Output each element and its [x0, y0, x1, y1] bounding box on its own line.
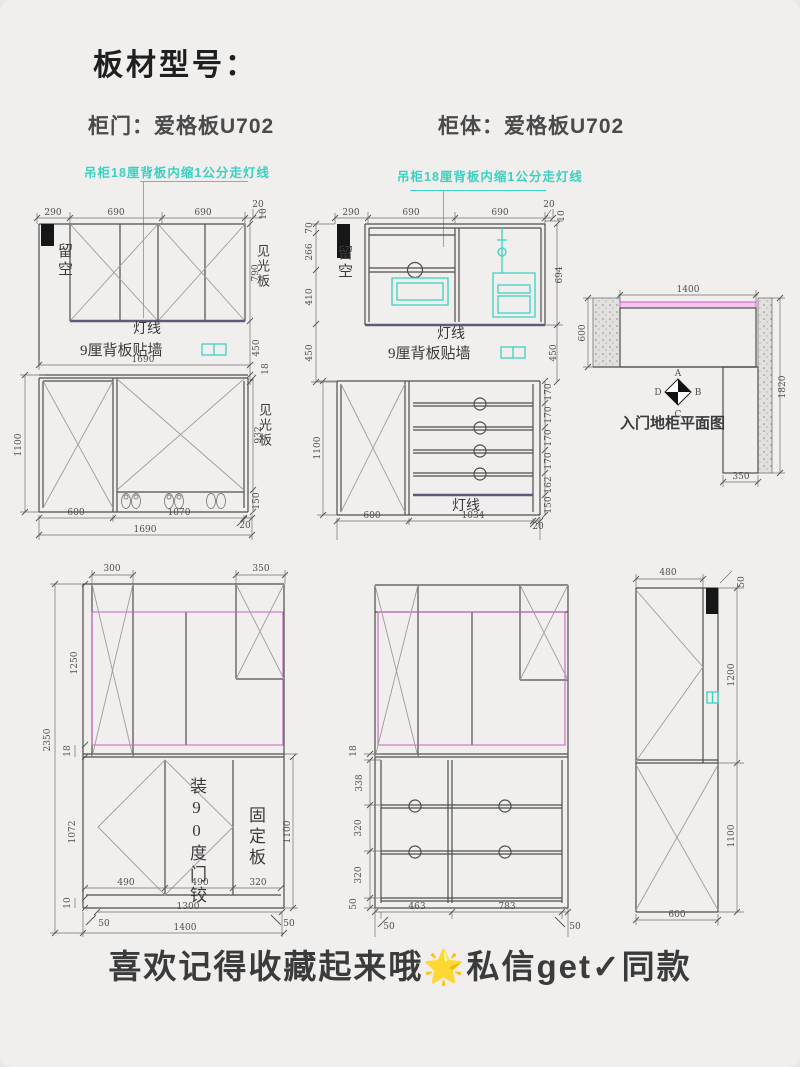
dim-label: 600: [578, 324, 588, 341]
dim-label: 320: [354, 819, 364, 836]
dim-label: 1072: [68, 821, 78, 844]
dim-label: 50: [349, 898, 359, 910]
dim-label: 150: [544, 496, 554, 513]
plan-light-band: [620, 302, 756, 308]
dim-label: 450: [549, 344, 559, 361]
compass-label-b: B: [695, 388, 702, 398]
dim-label: 170: [544, 406, 554, 423]
dim-label: 18: [63, 745, 73, 757]
drawing-bottom-middle: 18 338 320 320 50 463 783 50 50: [340, 555, 600, 955]
dim-label: 690: [194, 208, 211, 218]
dim-label: 480: [659, 568, 676, 578]
wall-cabinet-note-left: 吊柜18厘背板内缩1公分走灯线: [84, 162, 270, 181]
page-title: 板材型号：: [93, 40, 258, 84]
dim-label: 170: [544, 429, 554, 446]
dim-label: 410: [305, 288, 315, 305]
plan-left-wall: [593, 298, 620, 367]
dim-label: 290: [44, 208, 61, 218]
dim-label: 600: [67, 508, 84, 518]
compass-icon: [665, 379, 691, 405]
d1-wall-stub: [41, 224, 54, 246]
dim-label: 350: [732, 472, 749, 482]
dim-label: 1250: [70, 651, 80, 674]
d4-fixed-board-note: 固定板: [247, 806, 264, 869]
dim-label: 600: [668, 910, 685, 920]
dim-label: 320: [354, 866, 364, 883]
d1-backpanel-label: 9厘背板贴墙: [80, 339, 163, 360]
dim-label: 1690: [134, 525, 157, 535]
d2-liukong-label: 留空: [336, 245, 351, 281]
dim-label: 18: [349, 745, 359, 757]
d6-braces: [636, 590, 718, 910]
dim-label: 2350: [43, 728, 53, 751]
dim-label: 338: [355, 774, 365, 791]
d2-coffee-machine-icon: [493, 228, 535, 317]
d5-outline: [375, 585, 568, 908]
dim-label: 690: [402, 208, 419, 218]
dim-label: 18: [261, 363, 271, 375]
dim-label: 690: [491, 208, 508, 218]
body-spec-label: 柜体：爱格板U702: [438, 110, 624, 140]
dim-label: 450: [252, 339, 262, 356]
drawing-plan-view: 1400 600 1820 350 A B C D: [580, 275, 800, 490]
d2-microwave-icon: [392, 278, 448, 305]
d1-dengxian-label: 灯线: [133, 318, 161, 338]
dim-label: 690: [107, 208, 124, 218]
d2-knob: [408, 263, 423, 278]
d6-tick-marks: [633, 576, 740, 923]
dim-label: 266: [305, 243, 315, 260]
d2-backpanel-label: 9厘背板贴墙: [388, 342, 471, 363]
dim-label: 290: [342, 208, 359, 218]
d1-shoes-icon: [122, 494, 226, 509]
dim-label: 20: [532, 522, 544, 532]
dim-label: 170: [544, 452, 554, 469]
d1-jianguangban-bottom: 见光板: [258, 403, 271, 448]
d1-door-braces: [43, 224, 245, 508]
dim-label: 1400: [174, 923, 197, 933]
dim-label: 320: [249, 878, 266, 888]
d1-liukong-label: 留空: [56, 243, 71, 279]
d6-switch-icon: [707, 692, 718, 703]
d6-wall-stub: [706, 588, 718, 614]
dim-label: 70: [305, 222, 315, 234]
d2-drawer-knobs: [474, 398, 486, 480]
dim-label: 1400: [677, 285, 700, 295]
note-underline-right: [410, 190, 546, 191]
dim-label: 300: [103, 564, 120, 574]
d2-dengxian-top-label: 灯线: [437, 323, 465, 343]
drawing-bottom-right: 480 50 1200 1100 600: [600, 555, 800, 955]
d2-braces: [341, 384, 405, 512]
dim-label: 20: [543, 200, 555, 210]
plan-counter: [620, 308, 756, 367]
d5-dim-lines: [364, 754, 568, 937]
d2-switch-icon: [501, 347, 525, 358]
compass-label-d: D: [654, 388, 661, 398]
dim-label: 350: [252, 564, 269, 574]
dim-label: 1100: [14, 433, 24, 456]
dim-label: 490: [117, 878, 134, 888]
dim-label: 50: [283, 919, 295, 929]
plan-caption: 入门地柜平面图: [620, 412, 725, 433]
dim-label: 450: [305, 344, 315, 361]
dim-label: 694: [555, 266, 565, 283]
dim-label: 50: [383, 922, 395, 932]
d4-hinge-note: 装90度门铰: [188, 777, 205, 907]
blueprint-poster: 板材型号： 柜门：爱格板U702 柜体：爱格板U702 吊柜18厘背板内缩1公分…: [0, 0, 800, 1067]
note-underline-left: [140, 181, 248, 182]
footer-banner: 喜欢记得收藏起来哦🌟私信get✓同款: [0, 940, 800, 988]
door-spec-label: 柜门：爱格板U702: [88, 110, 274, 140]
d2-dengxian-bottom-label: 灯线: [452, 495, 480, 515]
dim-label: 463: [408, 902, 425, 912]
wall-cabinet-note-right: 吊柜18厘背板内缩1公分走灯线: [397, 166, 583, 185]
dim-label: 1070: [168, 508, 191, 518]
dim-label: 10: [557, 210, 567, 222]
plan-right-wall: [758, 298, 772, 473]
plan-right-leg: [723, 367, 758, 473]
d1-switch-icon: [202, 344, 226, 355]
dim-label: 1100: [313, 436, 323, 459]
dim-label: 10: [259, 208, 269, 220]
dim-label: 1200: [727, 663, 737, 686]
dim-label: 50: [98, 919, 110, 929]
dim-label: 20: [239, 521, 251, 531]
dim-label: 10: [63, 897, 73, 909]
d1-jianguangban-top: 见光板: [256, 244, 269, 289]
compass-label-a: A: [674, 369, 682, 379]
dim-label: 162: [544, 476, 554, 493]
dim-label: 150: [252, 492, 262, 509]
dim-label: 170: [544, 383, 554, 400]
dim-label: 50: [569, 922, 581, 932]
dim-label: 50: [737, 576, 747, 588]
dim-label: 1820: [778, 375, 788, 398]
dim-label: 1100: [727, 824, 737, 847]
dim-label: 600: [363, 511, 380, 521]
drawing-bottom-left: 300 350 2350 1250 18 1072 10 1100 490 49…: [30, 555, 310, 955]
dim-label: 1100: [283, 820, 293, 843]
dim-label: 783: [498, 902, 515, 912]
d6-dim-lines: [636, 571, 744, 925]
d2-outline: [337, 224, 545, 515]
d5-drawer-knobs: [409, 800, 511, 858]
